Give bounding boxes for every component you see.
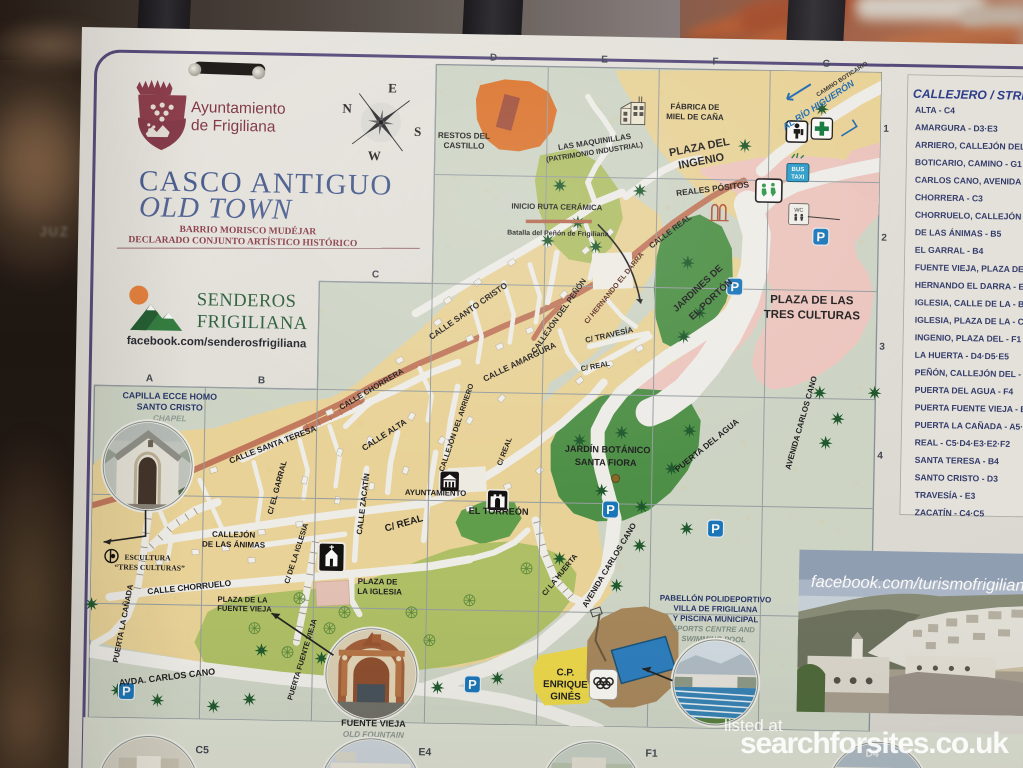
svg-text:E: E bbox=[388, 80, 397, 95]
svg-text:FUENTE VIEJA: FUENTE VIEJA bbox=[341, 718, 406, 729]
svg-text:FUENTE VIEJA: FUENTE VIEJA bbox=[217, 604, 272, 614]
svg-text:SANTO CRISTO - D3: SANTO CRISTO - D3 bbox=[915, 472, 999, 484]
svg-text:WC: WC bbox=[794, 208, 803, 214]
svg-text:INGENIO, PLAZA DEL - F1: INGENIO, PLAZA DEL - F1 bbox=[915, 332, 1022, 344]
svg-text:LA IGLESIA: LA IGLESIA bbox=[357, 587, 402, 597]
svg-text:BUS: BUS bbox=[792, 167, 805, 173]
svg-text:2: 2 bbox=[881, 233, 887, 244]
svg-text:AMARGURA - D3·E3: AMARGURA - D3·E3 bbox=[915, 122, 998, 134]
svg-text:C.P.: C.P. bbox=[556, 667, 574, 678]
svg-text:F1: F1 bbox=[645, 747, 658, 759]
svg-text:REAL - C5·D4·E3·E2·F2: REAL - C5·D4·E3·E2·F2 bbox=[915, 437, 1011, 449]
svg-text:3: 3 bbox=[879, 342, 885, 353]
svg-text:PLAZA DE: PLAZA DE bbox=[358, 577, 399, 587]
svg-text:AYUNTAMIENTO: AYUNTAMIENTO bbox=[405, 488, 467, 498]
svg-text:FÁBRICA DE: FÁBRICA DE bbox=[670, 102, 720, 112]
svg-text:PEÑÓN, CALLEJÓN DEL - E3: PEÑÓN, CALLEJÓN DEL - E3 bbox=[915, 366, 1023, 379]
svg-text:PLAZA DE LAS: PLAZA DE LAS bbox=[770, 294, 854, 308]
svg-text:MIEL DE CAÑA: MIEL DE CAÑA bbox=[666, 112, 724, 122]
svg-text:S: S bbox=[414, 124, 422, 139]
svg-text:IGLESIA, PLAZA DE LA - C5: IGLESIA, PLAZA DE LA - C5 bbox=[915, 315, 1023, 327]
svg-text:BARRIO MORISCO MUDÉJAR: BARRIO MORISCO MUDÉJAR bbox=[179, 223, 316, 238]
svg-text:IGLESIA, CALLE DE LA - B5: IGLESIA, CALLE DE LA - B5 bbox=[915, 297, 1023, 309]
svg-text:PUERTA FUENTE VIEJA - B6: PUERTA FUENTE VIEJA - B6 bbox=[915, 402, 1023, 414]
svg-text:E: E bbox=[601, 55, 608, 66]
svg-text:G: G bbox=[822, 59, 830, 70]
svg-text:E4: E4 bbox=[418, 746, 431, 758]
svg-text:1: 1 bbox=[883, 124, 889, 135]
svg-text:facebook.com/senderosfrigilian: facebook.com/senderosfrigiliana bbox=[127, 335, 307, 350]
svg-text:D: D bbox=[490, 52, 497, 63]
svg-text:CHORRERA - C3: CHORRERA - C3 bbox=[915, 192, 983, 203]
svg-text:CALLEJÓN: CALLEJÓN bbox=[212, 530, 255, 540]
svg-text:DE LAS ÁNIMAS - B5: DE LAS ÁNIMAS - B5 bbox=[915, 227, 1002, 239]
svg-text:OLD TOWN: OLD TOWN bbox=[139, 191, 294, 226]
svg-text:SENDEROS: SENDEROS bbox=[197, 290, 297, 312]
svg-text:DE LAS ÁNIMAS: DE LAS ÁNIMAS bbox=[202, 540, 266, 550]
svg-text:ENRIQUE: ENRIQUE bbox=[543, 679, 588, 691]
svg-text:ZACATÍN - C4·C5: ZACATÍN - C4·C5 bbox=[915, 507, 985, 518]
svg-text:BOTICARIO, CAMINO - G1: BOTICARIO, CAMINO - G1 bbox=[915, 157, 1022, 169]
svg-text:SANTA FIORA: SANTA FIORA bbox=[575, 457, 637, 468]
svg-text:FRIGILIANA: FRIGILIANA bbox=[197, 312, 308, 334]
svg-text:LA HUERTA - D4·D5·E5: LA HUERTA - D4·D5·E5 bbox=[915, 350, 1010, 362]
svg-text:W: W bbox=[368, 148, 381, 163]
svg-text:PUERTA DEL AGUA - F4: PUERTA DEL AGUA - F4 bbox=[915, 385, 1014, 397]
svg-text:N: N bbox=[342, 101, 352, 116]
svg-text:EL TORREÓN: EL TORREÓN bbox=[469, 505, 529, 517]
svg-text:EL GARRAL - B4: EL GARRAL - B4 bbox=[915, 245, 984, 256]
svg-text:ALTA - C4: ALTA - C4 bbox=[915, 105, 955, 116]
svg-text:GINÉS: GINÉS bbox=[550, 690, 581, 703]
svg-text:TAXI: TAXI bbox=[791, 175, 805, 181]
svg-text:de Frigiliana: de Frigiliana bbox=[191, 117, 276, 136]
svg-text:VILLA DE FRIGILIANA: VILLA DE FRIGILIANA bbox=[673, 604, 758, 615]
svg-text:ESCULTURA: ESCULTURA bbox=[124, 553, 171, 563]
svg-text:C5: C5 bbox=[195, 744, 209, 756]
svg-text:4: 4 bbox=[877, 451, 883, 462]
svg-text:JARDÍN BOTÁNICO: JARDÍN BOTÁNICO bbox=[565, 443, 651, 456]
svg-text:SPORTS CENTRE AND: SPORTS CENTRE AND bbox=[672, 624, 755, 635]
svg-text:Ayuntamiento: Ayuntamiento bbox=[191, 99, 286, 118]
svg-text:TRES CULTURAS: TRES CULTURAS bbox=[764, 309, 861, 323]
svg-text:Y PISCINA MUNICIPAL: Y PISCINA MUNICIPAL bbox=[673, 614, 759, 625]
svg-text:CALLEJERO / STREETS: CALLEJERO / STREETS bbox=[913, 87, 1023, 104]
svg-text:“TRES CULTURAS”: “TRES CULTURAS” bbox=[114, 562, 185, 572]
svg-text:TRAVESÍA - E3: TRAVESÍA - E3 bbox=[915, 490, 976, 501]
svg-text:SANTA TERESA - B4: SANTA TERESA - B4 bbox=[915, 455, 1000, 467]
svg-text:F: F bbox=[712, 57, 718, 68]
